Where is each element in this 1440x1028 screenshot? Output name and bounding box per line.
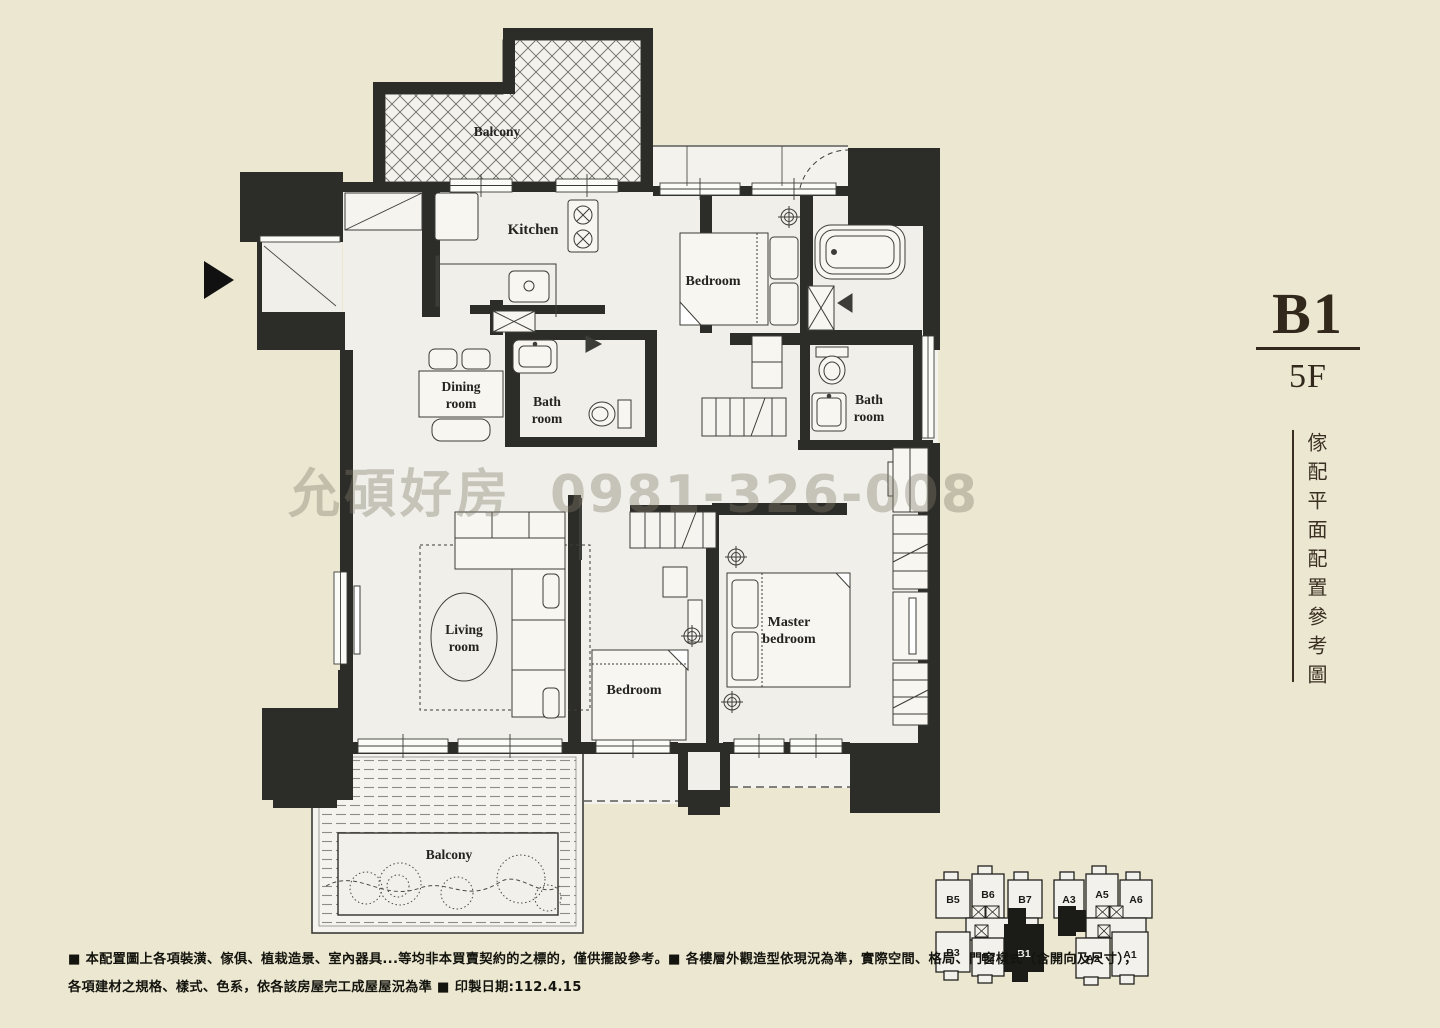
room-label-bath-center: Bath xyxy=(533,394,561,409)
floor-label: 5F xyxy=(1256,358,1360,396)
watermark-phone: 0981-326-008 xyxy=(550,465,979,525)
keyplan-unit-a3: A3 xyxy=(1062,894,1076,906)
room-label-master-2: bedroom xyxy=(762,632,816,647)
shower-x-box xyxy=(808,286,834,330)
watermark-name: 允碩好房 xyxy=(288,465,512,525)
room-label-dining: Dining xyxy=(441,379,480,394)
desk xyxy=(663,567,687,597)
hall-closet-grid xyxy=(702,398,786,436)
room-label-bedroom-mid: Bedroom xyxy=(607,683,662,698)
keyplan-unit-a6: A6 xyxy=(1129,894,1143,906)
wardrobe-grid xyxy=(893,663,928,725)
room-label-dining-2: room xyxy=(446,396,477,411)
caption-vertical: 傢配平面配置參考圖 xyxy=(1302,432,1331,693)
keyplan-highlighted-unit xyxy=(1004,906,1086,982)
room-label-bath-center-2: room xyxy=(532,411,563,426)
room-label-living-2: room xyxy=(449,639,480,654)
tv-console xyxy=(354,586,360,654)
room-label-bath-right-2: room xyxy=(854,409,885,424)
pillow xyxy=(770,237,798,279)
unit-title: B1 xyxy=(1256,284,1360,350)
room-label-master: Master xyxy=(768,615,811,630)
keyplan-unit-b5: B5 xyxy=(946,894,960,906)
pillow xyxy=(770,283,798,325)
keyplan-unit-a5: A5 xyxy=(1095,889,1109,901)
room-label-bath-right: Bath xyxy=(855,392,883,407)
disclaimer-line-2: 各項建材之規格、樣式、色系，依各該房屋完工成屋屋況為準 ■ 印製日期:112.4… xyxy=(68,976,582,995)
sink-icon xyxy=(812,393,846,431)
entrance-arrow-icon xyxy=(204,261,234,299)
dining-bench xyxy=(432,419,490,441)
room-label-balcony-top: Balcony xyxy=(474,124,521,139)
wardrobe-mirror xyxy=(893,592,928,660)
closet-x-box xyxy=(493,311,535,332)
dining-chair xyxy=(429,349,457,369)
bathtub-icon xyxy=(815,225,905,279)
pillow xyxy=(732,580,758,628)
kitchen-sink-icon xyxy=(509,271,549,302)
pillar-inset xyxy=(688,752,720,790)
toilet-icon xyxy=(589,400,631,428)
room-label-living: Living xyxy=(445,622,483,637)
room-label-bedroom-top: Bedroom xyxy=(686,274,741,289)
stove-icon xyxy=(568,200,598,252)
floor-plan-page: Balcony Kitchen Bedroom Bath room Dining… xyxy=(0,0,1440,1028)
room-label-kitchen: Kitchen xyxy=(508,222,559,238)
caption-rule xyxy=(1292,430,1294,682)
refrigerator xyxy=(435,193,478,240)
room-label-balcony-bottom: Balcony xyxy=(426,847,473,862)
keyplan-unit-b6: B6 xyxy=(981,889,995,901)
kitchen-door-leaf xyxy=(436,256,439,306)
keyplan-unit-b7: B7 xyxy=(1018,894,1032,906)
dining-chair xyxy=(462,349,490,369)
sink-icon xyxy=(513,340,557,373)
pillow xyxy=(732,632,758,680)
key-plan: B5 B6 B7 B3 B2 B1 A3 A5 A6 A2 A1 xyxy=(936,866,1152,985)
watermark: 允碩好房0981-326-008 xyxy=(288,452,979,527)
disclaimer-line-1: ■ 本配置圖上各項裝潢、傢俱、植栽造景、室內器具...等均非本買賣契約的之標的，… xyxy=(68,948,1138,967)
